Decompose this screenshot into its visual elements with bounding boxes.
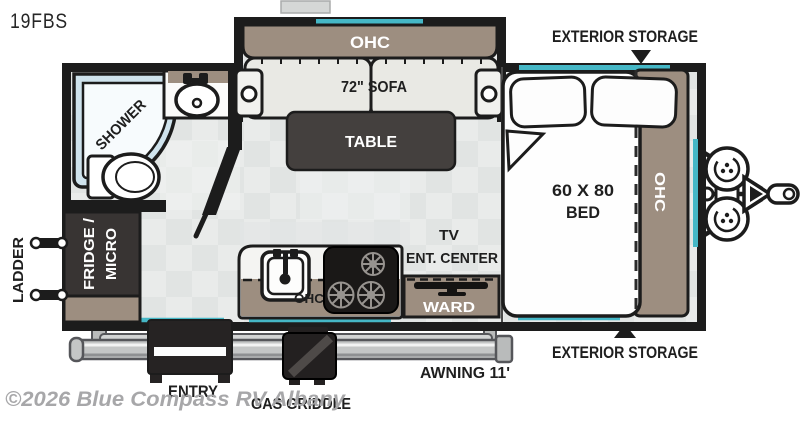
wardrobe: WARD: [404, 276, 499, 317]
sofa-ohc-label: OHC: [350, 33, 390, 52]
propane-tank: [706, 148, 748, 190]
awning-label: AWNING 11': [420, 365, 510, 382]
storage-arrow-down-icon: [631, 50, 651, 64]
bed-label: BED: [566, 203, 600, 222]
kitchen-counter: OHC: [239, 246, 402, 318]
burner-icon: [329, 283, 354, 308]
dinette-table: TABLE: [287, 112, 455, 170]
sofa-label: 72" SOFA: [341, 79, 407, 96]
table-label: TABLE: [345, 134, 397, 151]
burner-icon: [358, 282, 384, 308]
ladder-label: LADDER: [10, 237, 27, 303]
burner-icon: [362, 253, 384, 275]
tv-label-2: ENT. CENTER: [406, 250, 498, 267]
hitch-assembly: [701, 148, 798, 240]
roof-vent: [281, 1, 330, 13]
bath-sink: [164, 71, 233, 118]
fridge-label-1: FRIDGE /: [81, 217, 98, 290]
gas-griddle-icon: [283, 327, 336, 385]
bed: 60 X 80 BED OHC: [503, 70, 688, 316]
bed-size-label: 60 X 80: [552, 181, 614, 200]
fridge-label-2: MICRO: [103, 228, 120, 280]
pillow: [510, 77, 586, 128]
sofa: OHC 72" SOFA: [236, 25, 502, 118]
propane-tank: [706, 198, 748, 240]
ward-label: WARD: [423, 299, 475, 316]
kitchen-ohc-label: OHC: [294, 291, 325, 306]
fridge-counter: [64, 296, 140, 322]
tv-label-1: TV: [439, 227, 459, 244]
pillow: [591, 77, 677, 128]
floorplan-svg: 19FBS: [0, 0, 800, 423]
faucet-icon: [183, 73, 192, 84]
exterior-storage-label-top: EXTERIOR STORAGE: [552, 27, 698, 46]
toilet: [88, 154, 159, 200]
faucet-icon: [273, 249, 281, 257]
fridge-micro: FRIDGE / MICRO: [64, 212, 140, 322]
entry-steps: [148, 320, 232, 383]
exterior-storage-label-bottom: EXTERIOR STORAGE: [552, 343, 698, 362]
watermark: ©2026 Blue Compass RV Albany: [5, 388, 346, 411]
bath-wall: [62, 200, 166, 212]
model-title: 19FBS: [10, 10, 68, 33]
stove: [324, 247, 398, 313]
bed-ohc-label: OHC: [651, 172, 668, 212]
floorplan-canvas: 19FBS: [0, 0, 800, 423]
